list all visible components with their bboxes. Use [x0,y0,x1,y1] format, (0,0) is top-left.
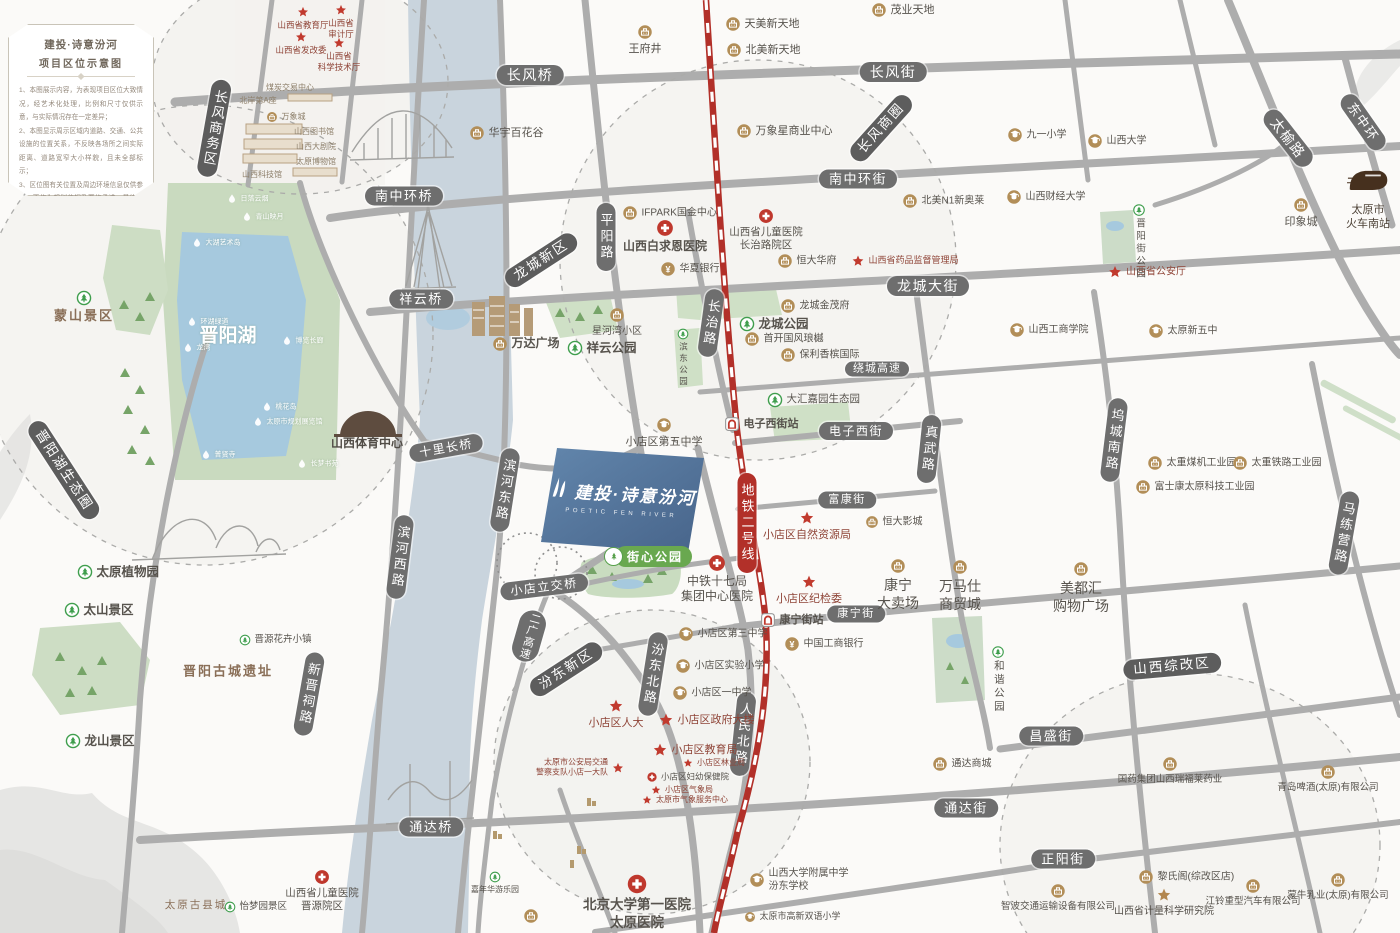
drop-icon [228,194,237,205]
road-pill: 正阳街 [1031,850,1095,869]
poi-label: 太原古县城 [165,899,228,913]
park-icon [240,635,251,646]
project-logo-icon [548,476,569,504]
poi-label: 山西大学 [1107,135,1147,148]
poi-label: 太原市气象服务中心 [656,795,728,805]
poi-label: 小店区第五中学 [626,435,703,449]
poi-label: 晋阳古城遗址 [183,664,273,681]
poi-label: 晋源花卉小镇 [255,634,312,646]
biz-icon [1051,884,1066,899]
lake-label: 桃花岛 [276,402,297,411]
poi-label: 富士康太原科技工业园 [1155,481,1255,494]
project-name: 建投·诗意汾河 [574,478,697,509]
poi-label: 小店区教育局 [672,743,738,757]
metro-icon [761,613,776,628]
school-icon [1010,323,1025,338]
road-pill: 长风桥 [497,65,564,85]
poi-label: 太原市高新双语小学 [760,911,841,923]
biz-icon [1331,873,1346,888]
lake-label: 长梦书苑 [311,459,339,468]
poi-label: 小店区纪检委 [776,592,842,606]
poi-label: 太山景区 [84,602,134,618]
road-pill: 长风街 [860,62,927,82]
school-icon [679,627,694,642]
poi-label: 山西省儿童医院晋源院区 [285,887,359,914]
biz-icon [781,348,796,363]
school-icon [676,659,691,674]
drop-icon [188,317,197,328]
poi-label: 万达广场 [512,336,560,352]
poi-label: 山西大学附属中学汾东学校 [769,867,849,893]
poi-label: 北美新天地 [746,43,801,57]
biz-icon [1074,562,1089,577]
biz-icon [1294,198,1309,213]
park-icon [65,603,80,618]
poi-label: 国药集团山西瑞福莱药业 [1118,774,1223,786]
road-pill: 龙城大街 [887,276,969,296]
poi-label: 太重煤机工业园 [1167,457,1237,470]
road-pill: 南中环桥 [365,187,443,206]
school-icon [1149,324,1164,339]
road-pill: 通达街 [934,799,998,818]
metro-icon [725,417,740,432]
hosp-icon [627,874,647,894]
star-icon [335,4,347,16]
poi-label: 星河湾小区 [592,325,642,338]
legend-divider [27,76,135,77]
hosp-icon [647,772,657,782]
poi-label: 滨东公园 [677,342,688,388]
school-icon [1008,128,1023,143]
lake-label: 太原市规划展览馆 [267,417,323,426]
poi-label: 和谐公园 [991,660,1005,714]
poi-label: 青岛啤酒(太原)有限公司 [1277,782,1378,794]
biz-icon [470,126,485,141]
lake-label: 龙湾 [197,343,211,352]
poi-label: 蒙山景区 [54,308,114,325]
biz-icon [1246,879,1261,894]
poi-label: 蒙牛乳业(太原)有限公司 [1287,890,1388,902]
road-pill: 富康街 [818,492,876,509]
hosp-icon [657,220,674,237]
biz-icon [903,194,918,209]
bank-icon: ¥ [785,637,800,652]
poi-label: 山西工商学院 [1029,324,1089,337]
biz-icon [737,124,752,139]
park-icon [490,872,501,883]
svg-text:¥: ¥ [666,264,671,274]
drop-icon [202,450,211,461]
hosp-icon [709,555,726,572]
poi-label: 太原市公安局交通警察支队小店一大队 [536,758,608,779]
star-icon [651,785,661,795]
poi-label: 太重铁路工业园 [1252,457,1322,470]
poi-label: 龙城公园 [759,316,809,332]
train-icon [1347,165,1389,196]
biz-icon [727,43,742,58]
poi-label: 小店区第三中学 [698,628,768,641]
highway-pill: 绕城高速 [845,362,909,377]
park-icon [740,317,755,332]
drop-icon [263,402,272,413]
poi-label: 大汇嘉园生态园 [787,393,861,407]
road-pill: 昌盛街 [1019,727,1083,746]
lake-label: 日落云烟 [241,194,269,203]
poi-label: 太原新五中 [1168,325,1218,338]
project-marker: 建投·诗意汾河 POETIC FEN RIVER [547,476,696,521]
poi-label: 山西体育中心 [331,436,403,452]
poi-label: 太原植物园 [97,564,160,580]
poi-label: 黎氏阁(综改区店) [1158,871,1235,884]
biz-icon [778,254,793,269]
poi-label: 中国工商银行 [804,638,864,651]
poi-label: 万象城 [282,112,306,122]
poi-label: 山西省计量科学研究院 [1114,905,1214,918]
poi-label: 太原博物馆 [296,157,336,167]
poi-label: 保利香槟国际 [800,349,860,362]
poi-label: 山西省教育厅 [277,20,328,31]
poi-label: 美都汇购物广场 [1053,579,1109,615]
poi-label: 祥云公园 [587,340,637,356]
legend-title: 建投·诗意汾河 [19,37,143,52]
poi-label: 小店区气象局 [665,785,713,795]
drop-icon [193,238,202,249]
school-icon [745,912,756,923]
drop-icon [254,417,263,428]
bank-icon: ¥ [661,262,676,277]
poi-label: 江铃重型汽车有限公司 [1205,896,1300,908]
school-icon [1088,134,1103,149]
poi-label: 通达商城 [952,758,992,771]
poi-label: 首开国风琅樾 [764,333,824,346]
poi-label: 小店区林业局 [697,758,745,768]
lake-label: 青山映月 [256,212,284,221]
lake-label: 普贤寺 [215,450,236,459]
poi-label: IFPARK国金中心 [642,207,717,220]
star-icon [683,758,693,768]
poi-label: 华宇百花谷 [489,126,544,140]
legend-note-1: 1、本图展示内容，为表现项目区位大致情况，经艺术化处理，比例和尺寸仅供示意，与实… [19,84,143,125]
poi-label: 山西科技馆 [242,170,282,180]
poi-label: 北美N1新奥莱 [922,195,985,208]
hosp-icon [315,870,330,885]
poi-label: 山西省儿童医院长治路院区 [729,226,803,253]
park-icon [568,341,583,356]
school-icon [750,873,765,888]
poi-label: 电子西街站 [744,417,799,431]
biz-icon [610,308,625,323]
biz-icon [781,299,796,314]
poi-label: 北京大学第一医院太原医院 [583,896,691,931]
location-map: 建投·诗意汾河 项目区位示意图 1、本图展示内容，为表现项目区位大致情况，经艺术… [0,0,1400,933]
lake-label: 环湖绿道 [201,317,229,326]
school-icon [1007,190,1022,205]
poi-label: 山西省药品监督管理局 [869,255,959,267]
star-icon [852,255,865,268]
star-icon [1108,265,1122,279]
star-icon [612,762,624,774]
biz-icon [866,516,879,529]
road-pill: 电子西街 [819,422,893,440]
star-gold-icon [1157,888,1172,903]
tree-icon [604,547,623,566]
poi-label: 中铁十七局集团中心医院 [681,574,753,605]
star-icon [659,713,674,728]
biz-icon [726,17,741,32]
poi-label: 万马仕商贸城 [939,577,981,613]
poi-label: 王府井 [629,42,662,56]
poi-label: 山西大剧院 [296,142,336,152]
school-icon [657,418,672,433]
star-icon [295,31,307,43]
biz-icon [933,757,948,772]
poi-label: 山西白求恩医院 [623,239,707,255]
poi-label: 小店区妇幼保健院 [661,771,729,782]
biz-icon [638,25,653,40]
road-pill: 平阳路 [597,203,616,271]
park-icon [678,329,689,340]
road-pill: 南中环街 [819,170,897,189]
star-icon [800,511,815,526]
drop-icon [283,336,292,347]
biz-icon [524,909,539,924]
poi-label: 康宁大卖场 [877,576,919,612]
legend-subtitle: 项目区位示意图 [19,55,143,70]
poi-label: 山西图书馆 [294,127,334,137]
biz-icon [745,332,760,347]
hosp-icon [759,209,774,224]
star-icon [609,699,624,714]
drop-icon [298,459,307,470]
poi-label: 华夏银行 [680,263,720,276]
biz-icon [1148,456,1163,471]
poi-label: 茂业天地 [891,3,935,17]
park-icon [66,734,81,749]
park-icon [992,646,1004,658]
park-icon [78,565,93,580]
road-pill: 通达桥 [399,818,463,837]
poi-label: 怡梦园景区 [240,901,288,913]
poi-label: 恒大影城 [883,516,923,529]
poi-label: 山西财经大学 [1026,191,1086,204]
star-icon [333,37,345,49]
poi-label: 龙山景区 [85,733,135,749]
drop-icon [184,343,193,354]
poi-label: 晋阳街公园 [1133,218,1145,281]
poi-label: 小店区实验小学 [695,660,765,673]
poi-label: 煤炭交易中心 [266,83,314,93]
star-icon [653,743,668,758]
poi-label: 山西省科学技术厅 [318,51,361,73]
poi-label: 小店区自然资源局 [763,528,851,542]
biz-icon [1163,757,1178,772]
poi-label: 九一小学 [1027,129,1067,142]
poi-label: 小店区政府大楼 [678,713,755,727]
road-pill: 祥云桥 [389,290,453,309]
drop-icon [243,212,252,223]
poi-label: 万象星商业中心 [756,124,833,138]
poi-label: 康宁街站 [780,613,824,627]
poi-label: 龙城金茂府 [800,300,850,313]
park-icon [768,393,783,408]
biz-icon [1139,870,1154,885]
school-icon [673,686,688,701]
poi-label: 太原市火车南站 [1346,203,1390,232]
poi-label: 嘉年华游乐园 [471,885,519,895]
poi-label: 恒大华府 [797,255,837,268]
svg-text:¥: ¥ [790,639,795,649]
legend-note-2: 2、本图显示周示区域内道路、交通、公共设施的位置关系，不反映各场所之间实际距离、… [19,125,143,179]
metro-line-pill: 地铁二号线 [738,473,757,573]
biz-icon [1136,480,1151,495]
lake-label: 博览长廊 [296,336,324,345]
poi-label: 天美新天地 [745,17,800,31]
legend-panel: 建投·诗意汾河 项目区位示意图 1、本图展示内容，为表现项目区位大致情况，经艺术… [8,24,154,196]
biz-icon [623,206,638,221]
biz-icon [493,337,508,352]
central-park-name: 街心公园 [615,546,692,567]
central-park-label: 街心公园 [604,546,692,567]
park-icon [225,902,236,913]
poi-label: 智波交通运输设备有限公司 [1001,901,1115,913]
lake-label: 大湖艺术岛 [206,238,241,247]
star-icon [642,795,652,805]
poi-label: 小店区一中学 [692,687,752,700]
star-icon [297,6,309,18]
biz-icon [267,112,278,123]
poi-label: 印象城 [1285,215,1318,229]
biz-icon [953,560,968,575]
biz-icon [1233,456,1248,471]
poi-label: 小店区人大 [589,716,644,730]
biz-icon [891,559,906,574]
biz-icon [1321,765,1336,780]
park-icon [1133,204,1145,216]
poi-label: 北岸第A座 [239,96,276,106]
biz-icon [872,3,887,18]
star-icon [802,575,817,590]
park-icon [77,291,92,306]
